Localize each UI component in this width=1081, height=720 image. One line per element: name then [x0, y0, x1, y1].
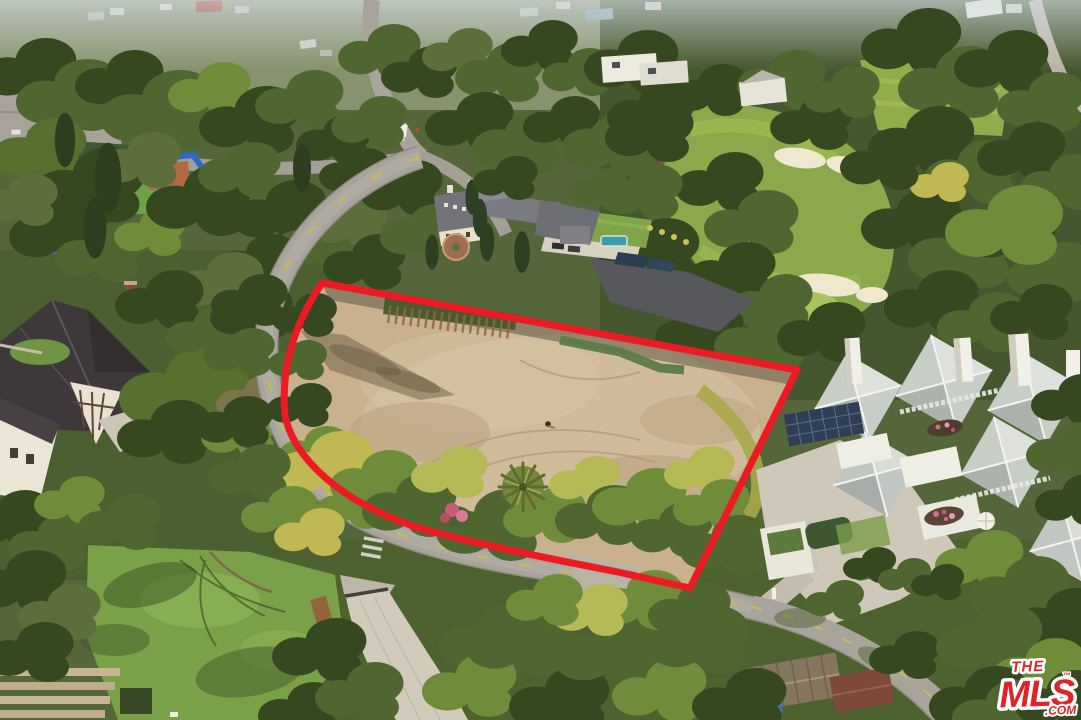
watermark-com: .COM: [1045, 703, 1078, 718]
patio-umbrella: [977, 512, 995, 530]
aerial-photo: THE MLS ™ .COM: [0, 0, 1081, 720]
swimming-pool: [601, 236, 627, 246]
watermark-tm: ™: [1063, 671, 1071, 680]
aerial-photo-stage: THE MLS ™ .COM: [0, 0, 1081, 720]
